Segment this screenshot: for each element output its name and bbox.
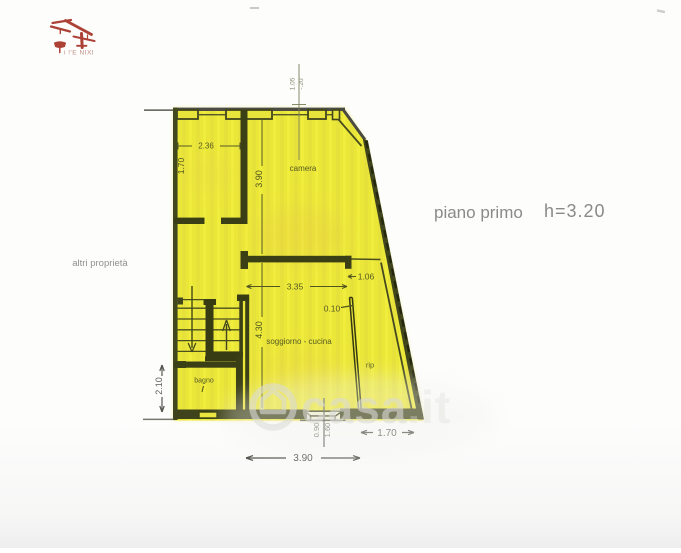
svg-text:1.70: 1.70 xyxy=(176,157,186,174)
svg-text:4.30: 4.30 xyxy=(254,321,264,339)
svg-text:altri proprietà: altri proprietà xyxy=(72,258,128,269)
svg-text:3.90: 3.90 xyxy=(254,170,264,188)
svg-text:piano primo: piano primo xyxy=(434,203,523,222)
svg-text:2.10: 2.10 xyxy=(154,377,164,395)
svg-text:1.06: 1.06 xyxy=(358,272,375,282)
svg-text:h=3.20: h=3.20 xyxy=(544,201,606,221)
svg-text:casa.it: casa.it xyxy=(301,381,451,433)
svg-text:1.05: 1.05 xyxy=(290,77,297,90)
svg-text:camera: camera xyxy=(290,164,317,173)
svg-text:bagno: bagno xyxy=(194,378,214,385)
svg-text:rip: rip xyxy=(366,361,374,370)
svg-text:3.35: 3.35 xyxy=(287,282,304,292)
svg-text:soggiorno - cucina: soggiorno - cucina xyxy=(266,337,332,346)
svg-text:2.36: 2.36 xyxy=(198,142,214,151)
svg-text:0.10: 0.10 xyxy=(324,304,341,314)
svg-text:i !'E NIXI: i !'E NIXI xyxy=(64,50,94,57)
svg-text:-.20: -.20 xyxy=(298,78,305,90)
